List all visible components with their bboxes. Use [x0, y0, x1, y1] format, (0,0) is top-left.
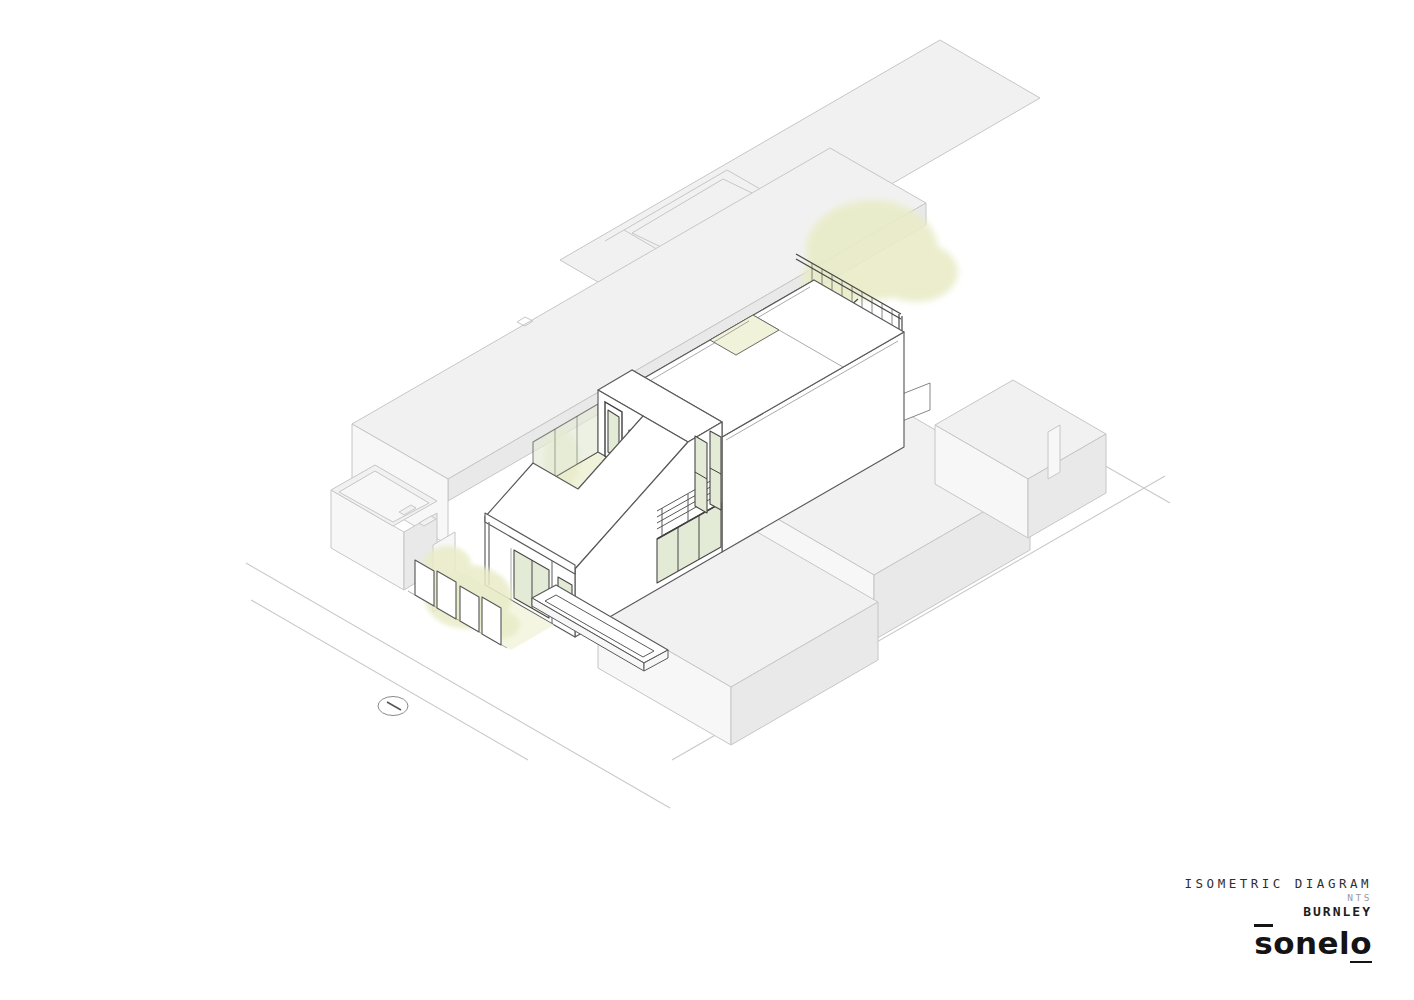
- isometric-drawing: [0, 0, 1414, 1000]
- project-name: BURNLEY: [1185, 904, 1372, 919]
- title-block: ISOMETRIC DIAGRAM NTS BURNLEY sonelo: [1185, 876, 1372, 959]
- drawing-title: ISOMETRIC DIAGRAM: [1185, 876, 1372, 891]
- north-arrow-icon: [378, 697, 408, 716]
- sonelo-logo: sonelo: [1254, 928, 1372, 959]
- drawing-sheet: ISOMETRIC DIAGRAM NTS BURNLEY sonelo: [0, 0, 1414, 1000]
- tall-window-1: [695, 436, 707, 513]
- drawing-scale: NTS: [1185, 892, 1372, 903]
